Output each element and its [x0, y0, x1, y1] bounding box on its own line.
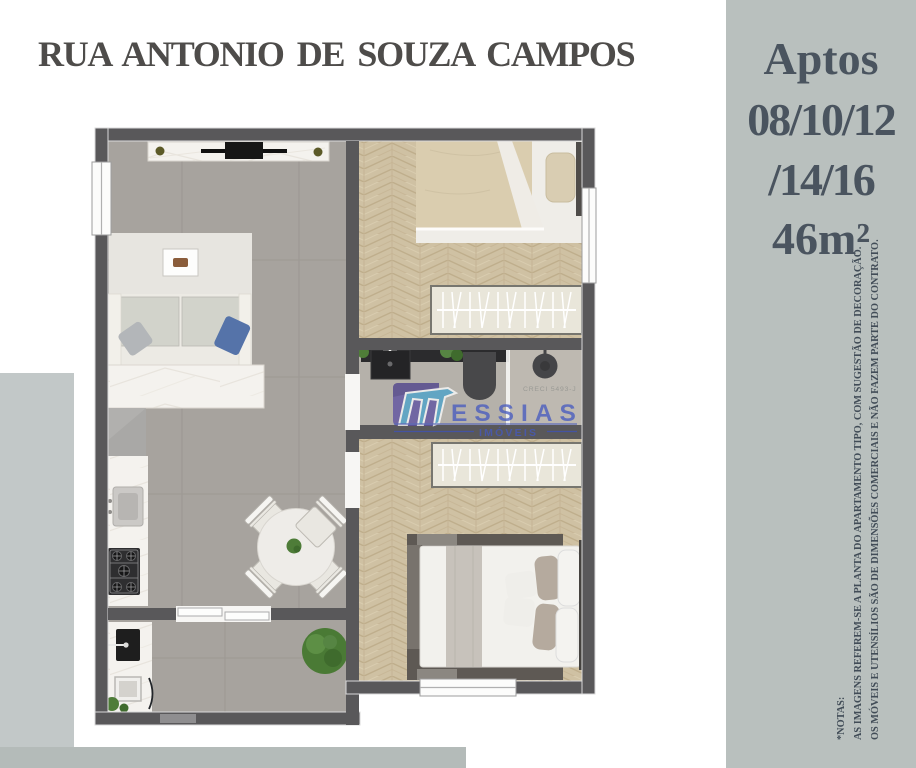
svg-text:ESSIAS: ESSIAS: [451, 400, 583, 427]
svg-text:CRECI 5493-J: CRECI 5493-J: [523, 386, 576, 393]
svg-text:IMÓVEIS: IMÓVEIS: [479, 426, 538, 439]
